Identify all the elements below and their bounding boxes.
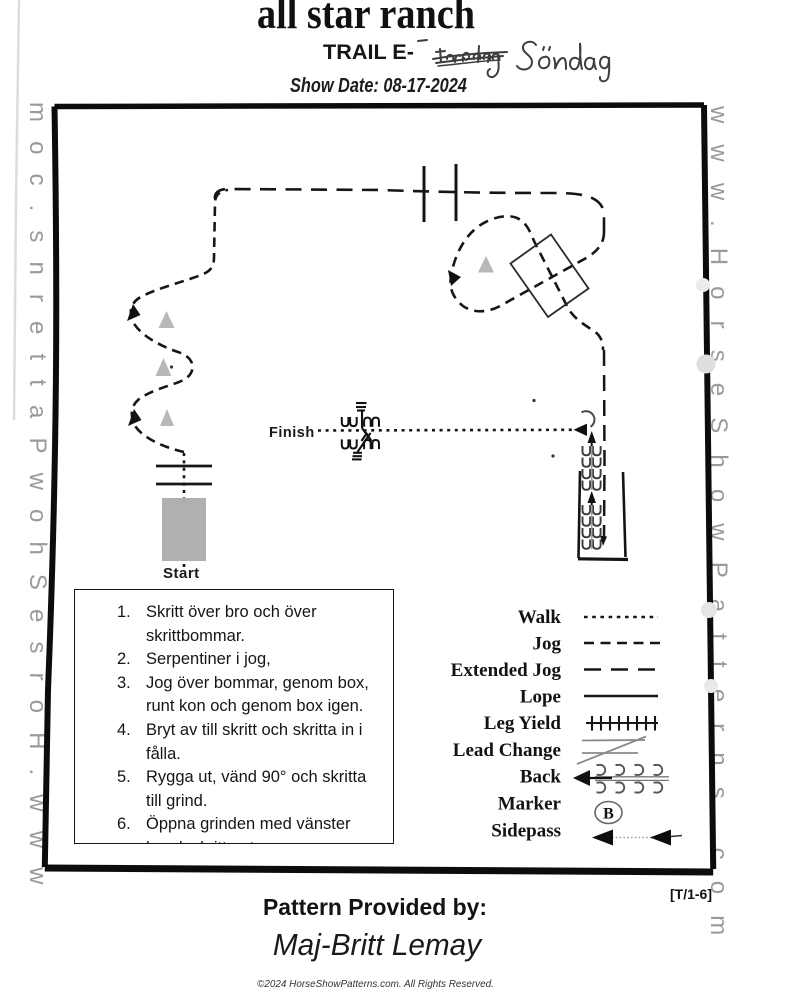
svg-text:Start: Start (163, 565, 200, 582)
svg-text:Lope: Lope (520, 687, 561, 708)
svg-text:Walk: Walk (518, 607, 562, 628)
svg-text:Leg Yield: Leg Yield (484, 713, 562, 734)
svg-text:Jog: Jog (533, 634, 562, 655)
svg-text:Lead Change: Lead Change (453, 740, 561, 761)
svg-text:Sidepass: Sidepass (491, 821, 561, 842)
svg-text:B: B (603, 806, 614, 823)
svg-text:Finish: Finish (269, 425, 315, 441)
svg-text:Marker: Marker (498, 794, 562, 815)
svg-text:Back: Back (520, 767, 562, 788)
svg-text:Extended Jog: Extended Jog (451, 660, 562, 681)
